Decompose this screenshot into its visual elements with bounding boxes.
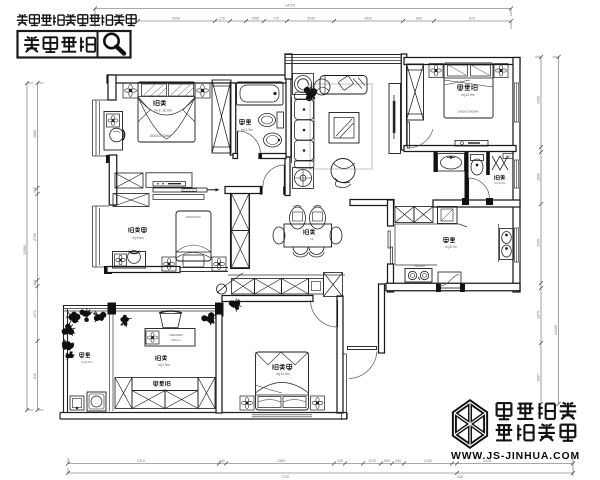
svg-text:7730: 7730 xyxy=(281,475,289,479)
svg-text:240: 240 xyxy=(457,475,463,479)
svg-text:WWW.JS-JINHUA.COM: WWW.JS-JINHUA.COM xyxy=(451,451,580,462)
svg-text:2360: 2360 xyxy=(277,459,285,463)
svg-text:mj:4.6m: mj:4.6m xyxy=(82,360,93,364)
svg-text:640: 640 xyxy=(33,373,37,379)
svg-text:2635: 2635 xyxy=(537,239,541,247)
svg-text:mi ji :16.0m: mi ji :16.0m xyxy=(154,109,172,113)
svg-text:750X450: 750X450 xyxy=(413,264,425,268)
svg-text:2780: 2780 xyxy=(33,233,37,241)
svg-text:mj:8.7m: mj:8.7m xyxy=(445,245,457,249)
svg-text:1400X600: 1400X600 xyxy=(169,333,183,337)
svg-text:240: 240 xyxy=(337,459,343,463)
svg-text:4110: 4110 xyxy=(137,459,145,463)
svg-text:170: 170 xyxy=(219,17,225,21)
svg-text:mj:12.9m: mj:12.9m xyxy=(461,93,474,97)
svg-text:mj:11.6m: mj:11.6m xyxy=(277,372,290,376)
svg-text:170: 170 xyxy=(273,17,279,21)
svg-text:240: 240 xyxy=(395,459,401,463)
svg-text:mj:4.2m: mj:4.2m xyxy=(241,128,253,132)
svg-text:2040: 2040 xyxy=(307,17,315,21)
svg-text:900: 900 xyxy=(416,17,422,21)
svg-text:1120: 1120 xyxy=(368,459,376,463)
svg-text:180: 180 xyxy=(33,187,37,193)
svg-text:14725: 14725 xyxy=(285,4,295,8)
svg-text:3430: 3430 xyxy=(364,17,372,21)
svg-text:mj:3.3m: mj:3.3m xyxy=(495,181,506,185)
svg-text:mj:7.5m: mj:7.5m xyxy=(158,363,170,367)
svg-text:1975: 1975 xyxy=(537,311,541,319)
svg-text:mj:9.6m: mj:9.6m xyxy=(132,236,144,240)
svg-text:500: 500 xyxy=(506,154,511,158)
svg-text:1455: 1455 xyxy=(251,17,259,21)
svg-text:12560: 12560 xyxy=(23,245,27,255)
svg-text:600mm: 600mm xyxy=(171,338,181,342)
svg-text:1688: 1688 xyxy=(33,130,37,138)
svg-text:2140: 2140 xyxy=(424,459,432,463)
svg-text:1472: 1472 xyxy=(33,310,37,318)
svg-text:mj:: mj: xyxy=(310,237,314,241)
svg-text:6040: 6040 xyxy=(172,17,180,21)
svg-text:1800X2000MM: 1800X2000MM xyxy=(149,134,171,138)
svg-text:1650: 1650 xyxy=(537,173,541,181)
svg-text:240: 240 xyxy=(219,459,225,463)
svg-text:1697: 1697 xyxy=(537,374,541,382)
svg-text:3085: 3085 xyxy=(537,96,541,104)
svg-text:500: 500 xyxy=(384,459,390,463)
svg-text:970: 970 xyxy=(469,17,475,21)
svg-text:1800X2000MM: 1800X2000MM xyxy=(458,110,479,114)
svg-text:14260: 14260 xyxy=(554,325,558,335)
svg-text:1200X2000: 1200X2000 xyxy=(185,215,201,219)
svg-text:180: 180 xyxy=(33,280,37,286)
